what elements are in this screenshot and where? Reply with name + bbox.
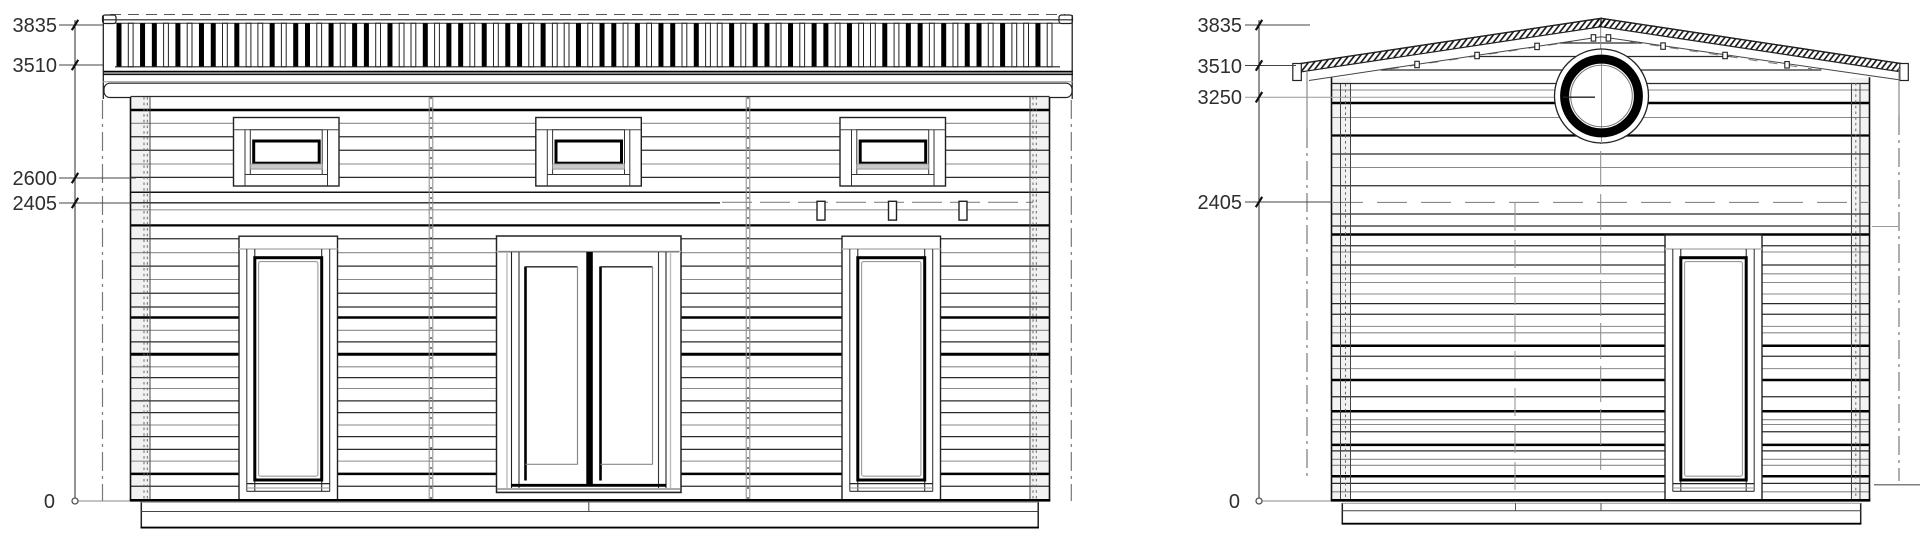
svg-text:3835: 3835: [13, 15, 58, 37]
svg-text:3250: 3250: [1198, 87, 1243, 109]
svg-text:0: 0: [1229, 491, 1240, 513]
svg-text:2405: 2405: [1198, 192, 1243, 214]
svg-text:3510: 3510: [1198, 56, 1243, 78]
svg-text:3510: 3510: [13, 55, 58, 77]
svg-text:2405: 2405: [13, 193, 58, 215]
svg-text:3835: 3835: [1198, 15, 1243, 37]
svg-text:2600: 2600: [13, 168, 58, 190]
svg-text:0: 0: [44, 491, 55, 513]
